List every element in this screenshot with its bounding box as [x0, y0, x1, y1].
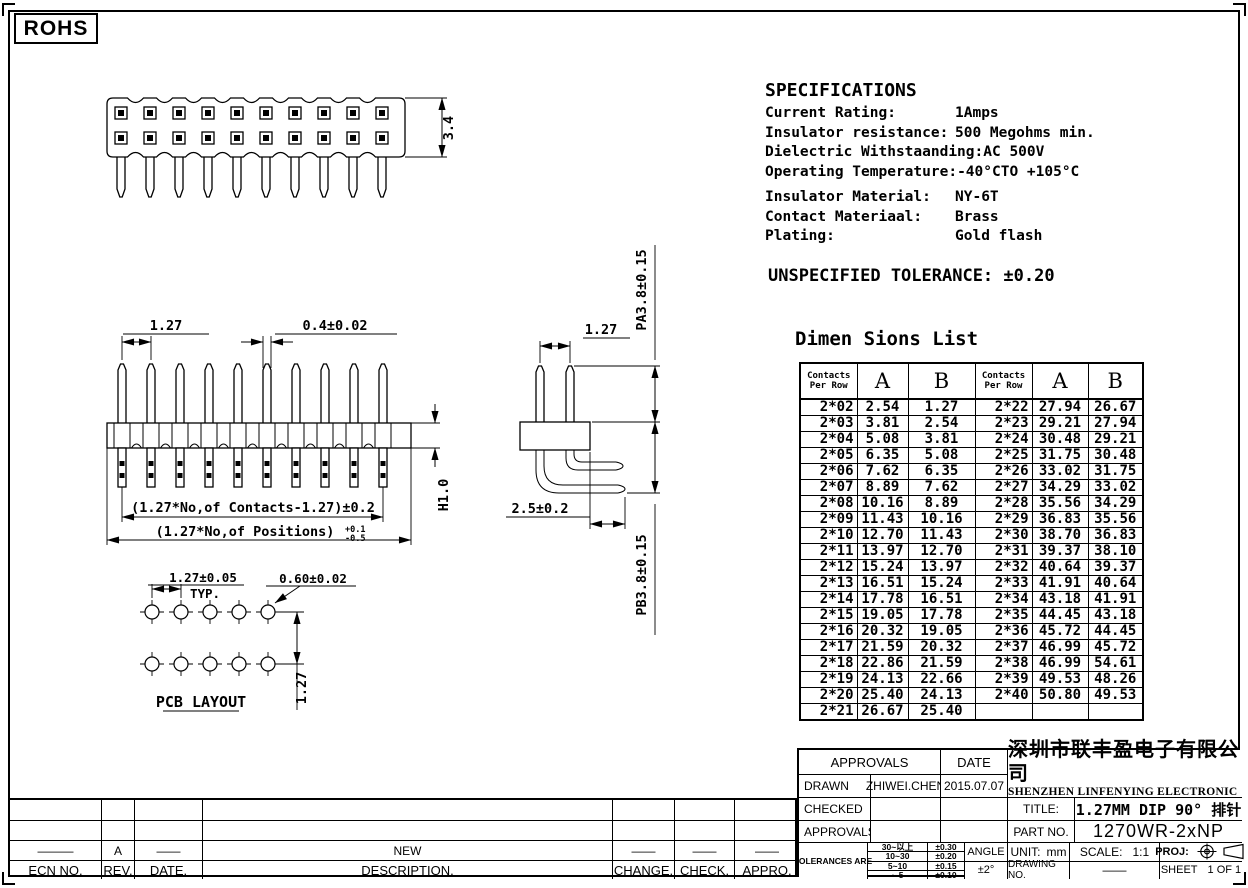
- front-pitch-dim: 1.27: [150, 318, 183, 334]
- contact-square-core: [234, 135, 240, 141]
- contact-square-core: [147, 110, 153, 116]
- dim-table-cell: 39.37: [1032, 544, 1088, 560]
- revision-block: ———A——NEW——————ECN NO.REV.DATE.DESCRIPTI…: [8, 798, 797, 877]
- pin: [233, 157, 241, 197]
- company-name-cn: 深圳市联丰盈电子有限公司: [1008, 738, 1242, 786]
- approvals-header: APPROVALS: [799, 750, 940, 774]
- spec-value: Gold flash: [955, 227, 1042, 247]
- dim-table-cell: 13.97: [857, 544, 908, 560]
- pin: [566, 366, 574, 422]
- dim-table-cell: 22.86: [857, 656, 908, 672]
- dim-table-cell: 2*25: [975, 448, 1032, 464]
- pin: [379, 364, 387, 423]
- dimensions-list-title: Dimen Sions List: [795, 328, 978, 350]
- scale-cell: SCALE: 1:1: [1069, 842, 1159, 861]
- dim-table-cell: 17.78: [857, 592, 908, 608]
- dim-table-cell: 31.75: [1088, 464, 1143, 480]
- dim-table-cell: 2*12: [800, 560, 857, 576]
- dim-table-cell: 2*30: [975, 528, 1032, 544]
- spec-row: Operating Temperature:-40°CTO +105°C: [765, 163, 1110, 183]
- third-angle-projection-icon: [1195, 843, 1247, 860]
- dim-table-cell: 54.61: [1088, 656, 1143, 672]
- dim-table-cell: 2*28: [975, 496, 1032, 512]
- dim-table-header-b: B: [908, 363, 975, 399]
- top-view-drawing: 3.4: [95, 82, 470, 210]
- revision-cell: ——: [612, 840, 674, 860]
- dim-table-cell: 2*10: [800, 528, 857, 544]
- sheet-cell: SHEET 1 OF 1: [1159, 861, 1242, 880]
- dim-table-cell: 2*22: [975, 399, 1032, 416]
- dim-table-cell: 13.97: [908, 560, 975, 576]
- leg: [350, 448, 358, 487]
- header-line: Per Row: [976, 381, 1032, 391]
- side-tail-dim: 2.5±0.2: [512, 501, 569, 517]
- contact-square-core: [350, 135, 356, 141]
- revision-header-cell: ECN NO.: [10, 860, 101, 879]
- spec-label: Plating:: [765, 227, 955, 247]
- revision-cell: [674, 800, 734, 820]
- dim-table-cell: 36.83: [1088, 528, 1143, 544]
- dim-table-cell: 2*08: [800, 496, 857, 512]
- drawing-no-value: ——: [1069, 861, 1159, 880]
- contact-square-core: [118, 135, 124, 141]
- date-header: DATE: [940, 750, 1007, 774]
- dim-table-cell: 38.70: [1032, 528, 1088, 544]
- leg: [118, 448, 126, 487]
- contact-square-core: [350, 110, 356, 116]
- spec-label: Current Rating:: [765, 104, 955, 124]
- tolerance-cell: ±0.30: [927, 842, 964, 851]
- revision-header-cell: DATE.: [134, 860, 202, 879]
- revision-header-cell: APPRO.: [734, 860, 799, 879]
- dim-table-cell: 2.54: [908, 416, 975, 432]
- leg: [205, 448, 213, 487]
- contact-square-core: [118, 110, 124, 116]
- pin: [378, 157, 386, 197]
- dim-table-cell: 2*04: [800, 432, 857, 448]
- front-positions-tol-lower: -0.5: [345, 534, 365, 544]
- angle-value: ±2°: [964, 861, 1007, 880]
- pin: [292, 364, 300, 423]
- contact-square-core: [263, 110, 269, 116]
- pcb-hole: [261, 657, 275, 671]
- dim-table-cell: 2*37: [975, 640, 1032, 656]
- dim-table-cell: 6.35: [908, 464, 975, 480]
- dim-table-cell: 2*24: [975, 432, 1032, 448]
- pcb-typ-label: TYP.: [190, 586, 220, 601]
- pin: [147, 364, 155, 423]
- dim-table-header-a: A: [1032, 363, 1088, 399]
- sheet-value: 1 OF 1: [1208, 864, 1242, 876]
- revision-cell: ———: [10, 840, 101, 860]
- dim-table-cell: 36.83: [1032, 512, 1088, 528]
- tolerance-cell: 5~10: [867, 861, 927, 870]
- pin: [205, 364, 213, 423]
- pin: [320, 157, 328, 197]
- dim-table-cell: 2*14: [800, 592, 857, 608]
- pin: [291, 157, 299, 197]
- dim-table-cell: 15.24: [857, 560, 908, 576]
- dim-table-cell: 2*38: [975, 656, 1032, 672]
- dim-table-cell: 7.62: [857, 464, 908, 480]
- leg: [321, 448, 329, 487]
- spec-row: Plating:Gold flash: [765, 227, 1110, 247]
- checked-date: [940, 797, 1007, 820]
- header-line: Per Row: [801, 381, 857, 391]
- approvals-date: [940, 820, 1007, 842]
- dim-table-cell: 2*23: [975, 416, 1032, 432]
- pcb-hole: [174, 657, 188, 671]
- contact-square-core: [176, 110, 182, 116]
- revision-cell: [202, 800, 612, 820]
- dim-table-cell: 2*27: [975, 480, 1032, 496]
- pcb-layout-drawing: 1.27±0.05 TYP. 0.60±0.02 1.27 PCB LAYOUT: [108, 572, 408, 724]
- pcb-hole: [145, 657, 159, 671]
- dim-table-cell: 21.59: [908, 656, 975, 672]
- leg: [234, 448, 242, 487]
- tolerance-grid: 30~以上±0.3010~30±0.205~10±0.15~ 5±0.10: [867, 842, 964, 879]
- dim-table-cell: 49.53: [1032, 672, 1088, 688]
- revision-cell: [734, 820, 799, 840]
- dim-table-cell: 2*06: [800, 464, 857, 480]
- dim-table-cell: 2*39: [975, 672, 1032, 688]
- dim-table-cell: 2*40: [975, 688, 1032, 704]
- tolerance-cell: ±0.20: [927, 851, 964, 860]
- revision-cell: [612, 800, 674, 820]
- front-view-drawing: 1.27 0.4±0.02 H1.0 (1.27*No,of Contacts-…: [95, 312, 470, 557]
- dim-table-cell: [1088, 704, 1143, 721]
- dim-table-cell: 5.08: [857, 432, 908, 448]
- dim-table-cell: 49.53: [1088, 688, 1143, 704]
- dim-table-cell: 46.99: [1032, 640, 1088, 656]
- dim-table-cell: 2*17: [800, 640, 857, 656]
- revision-header-cell: CHANGE.: [612, 860, 674, 879]
- pin: [146, 157, 154, 197]
- contact-square-core: [263, 135, 269, 141]
- dim-table-cell: 1.27: [908, 399, 975, 416]
- revision-cell: A: [101, 840, 134, 860]
- contact-square-core: [379, 110, 385, 116]
- dim-table-cell: 50.80: [1032, 688, 1088, 704]
- dim-table-cell: 12.70: [908, 544, 975, 560]
- dim-table-cell: 21.59: [857, 640, 908, 656]
- specifications-title: SPECIFICATIONS: [765, 80, 1110, 101]
- side-pb-dim: PB3.8±0.15: [634, 534, 650, 615]
- dim-table-cell: 2*29: [975, 512, 1032, 528]
- dim-table-cell: 25.40: [857, 688, 908, 704]
- leg: [263, 448, 271, 487]
- unit-cell: UNIT: mm: [1007, 842, 1069, 861]
- pin: [263, 364, 271, 423]
- revision-cell: [101, 820, 134, 840]
- pin: [321, 364, 329, 423]
- contact-square-core: [205, 110, 211, 116]
- spec-label: Insulator Material:: [765, 188, 955, 208]
- dim-table-cell: 39.37: [1088, 560, 1143, 576]
- revision-cell: [734, 800, 799, 820]
- revision-cell: ——: [734, 840, 799, 860]
- dim-table-cell: 2*15: [800, 608, 857, 624]
- tolerance-cell: 10~30: [867, 851, 927, 860]
- dim-table-cell: 2*03: [800, 416, 857, 432]
- leg: [379, 448, 387, 487]
- spec-label: Operating Temperature:: [765, 163, 957, 183]
- drawing-no-label: DRAWING NO.: [1007, 861, 1069, 880]
- leg: [147, 448, 155, 487]
- connector-body: [520, 422, 590, 450]
- dim-table-cell: 43.18: [1032, 592, 1088, 608]
- pin: [262, 157, 270, 197]
- dim-table-cell: 2*34: [975, 592, 1032, 608]
- dim-table-cell: 2*11: [800, 544, 857, 560]
- pin: [118, 364, 126, 423]
- spec-value: 500 Megohms min.: [955, 124, 1095, 144]
- dim-table-cell: 2*32: [975, 560, 1032, 576]
- dim-table-cell: 40.64: [1032, 560, 1088, 576]
- pin: [176, 364, 184, 423]
- spec-label: Insulator resistance:: [765, 124, 955, 144]
- dim-table-cell: 44.45: [1032, 608, 1088, 624]
- dim-table-cell: 2*05: [800, 448, 857, 464]
- specifications-block: SPECIFICATIONS Current Rating:1Amps Insu…: [765, 80, 1110, 247]
- dim-table-cell: 29.21: [1088, 432, 1143, 448]
- pcb-hole: [203, 657, 217, 671]
- pin: [204, 157, 212, 197]
- pin: [536, 366, 544, 422]
- dim-table-cell: 48.26: [1088, 672, 1143, 688]
- spec-label: Contact Materiaal:: [765, 208, 955, 228]
- revision-cell: [10, 820, 101, 840]
- title-label: TITLE:: [1007, 797, 1074, 820]
- revision-cell: [134, 800, 202, 820]
- revision-cell: [10, 800, 101, 820]
- scale-value: 1:1: [1133, 845, 1150, 859]
- dim-table-cell: 45.72: [1032, 624, 1088, 640]
- dim-table-cell: 2*26: [975, 464, 1032, 480]
- dim-table-cell: 2*16: [800, 624, 857, 640]
- approvals-label: APPROVALS: [799, 820, 870, 842]
- part-no-label: PART NO.: [1007, 820, 1074, 842]
- dim-table-cell: 41.91: [1088, 592, 1143, 608]
- contact-square-core: [321, 135, 327, 141]
- dim-table-cell: 7.62: [908, 480, 975, 496]
- contact-square-core: [379, 135, 385, 141]
- header-line: Contacts: [801, 371, 857, 381]
- dim-table-cell: 27.94: [1032, 399, 1088, 416]
- dim-table-cell: 26.67: [857, 704, 908, 721]
- spec-value: 1Amps: [955, 104, 999, 124]
- revision-header-cell: DESCRIPTION.: [202, 860, 612, 879]
- spec-row: Dielectric Withstaanding:AC 500V: [765, 143, 1110, 163]
- dim-table-cell: 34.29: [1088, 496, 1143, 512]
- spec-value: AC 500V: [983, 143, 1044, 163]
- tolerance-cell: ±0.10: [927, 870, 964, 879]
- dim-table-cell: 22.66: [908, 672, 975, 688]
- dim-table-cell: [1032, 704, 1088, 721]
- bent-leg: [574, 450, 616, 462]
- pin: [349, 157, 357, 197]
- dim-table-header-b: B: [1088, 363, 1143, 399]
- projection-cell: PROJ:: [1159, 842, 1242, 861]
- drawn-date: 2015.07.07: [940, 774, 1007, 797]
- dim-table-cell: 2*02: [800, 399, 857, 416]
- bent-leg: [536, 450, 618, 493]
- dim-table-cell: 8.89: [908, 496, 975, 512]
- pcb-layout-title: PCB LAYOUT: [156, 693, 246, 711]
- dim-table-cell: 16.51: [857, 576, 908, 592]
- part-no-value: 1270WR-2xNP: [1074, 820, 1242, 842]
- dim-table-cell: 2*21: [800, 704, 857, 721]
- dim-table-cell: 30.48: [1088, 448, 1143, 464]
- drawn-label: DRAWN: [799, 774, 870, 797]
- front-contacts-span-dim: (1.27*No,of Contacts-1.27)±0.2: [131, 500, 375, 516]
- dim-table-cell: 30.48: [1032, 432, 1088, 448]
- tolerance-cell: ±0.15: [927, 861, 964, 870]
- unspecified-tolerance-note: UNSPECIFIED TOLERANCE: ±0.20: [768, 266, 1055, 286]
- dim-table-cell: 33.02: [1088, 480, 1143, 496]
- drawing-sheet: ROHS SPECIFICATIONS Current Rating:1Amps…: [0, 0, 1248, 888]
- dim-table-cell: 10.16: [857, 496, 908, 512]
- dim-table-cell: 24.13: [908, 688, 975, 704]
- header-line: Contacts: [976, 371, 1032, 381]
- bent-leg: [544, 450, 618, 485]
- pcb-hole: [261, 605, 275, 619]
- dim-table-cell: 25.40: [908, 704, 975, 721]
- contact-square-core: [292, 135, 298, 141]
- dim-table-cell: 45.72: [1088, 640, 1143, 656]
- dim-table-cell: 8.89: [857, 480, 908, 496]
- dim-table-cell: 10.16: [908, 512, 975, 528]
- revision-header-cell: CHECK.: [674, 860, 734, 879]
- dim-table-cell: 17.78: [908, 608, 975, 624]
- dim-table-header-contacts: ContactsPer Row: [800, 363, 857, 399]
- approvals-name: [870, 820, 940, 842]
- spec-row: Contact Materiaal:Brass: [765, 208, 1110, 228]
- dim-table-cell: 3.81: [857, 416, 908, 432]
- revision-cell: ——: [674, 840, 734, 860]
- dim-table-cell: 6.35: [857, 448, 908, 464]
- spec-row: Current Rating:1Amps: [765, 104, 1110, 124]
- pcb-row-pitch-dim: 1.27: [294, 672, 310, 705]
- rohs-label: ROHS: [24, 17, 89, 41]
- pcb-hole: [203, 605, 217, 619]
- tolerance-cell: 30~以上: [867, 842, 927, 851]
- dim-table-cell: 26.67: [1088, 399, 1143, 416]
- dim-table-cell: 16.51: [908, 592, 975, 608]
- dim-table-cell: 2*07: [800, 480, 857, 496]
- dim-table-cell: 27.94: [1088, 416, 1143, 432]
- contact-square-core: [205, 135, 211, 141]
- contact-square-core: [321, 110, 327, 116]
- dim-table-cell: 34.29: [1032, 480, 1088, 496]
- pcb-pitch-dim: 1.27±0.05: [169, 570, 237, 585]
- pcb-hole: [145, 605, 159, 619]
- title-block: APPROVALS DATE DRAWN ZHIWEI.CHEN 2015.07…: [797, 748, 1240, 877]
- revision-cell: [674, 820, 734, 840]
- contact-square-core: [292, 110, 298, 116]
- spec-value: -40°CTO +105°C: [957, 163, 1079, 183]
- projection-label: PROJ:: [1155, 846, 1189, 858]
- dim-table-cell: 2.54: [857, 399, 908, 416]
- dim-table-cell: 2*35: [975, 608, 1032, 624]
- dim-table-cell: 12.70: [857, 528, 908, 544]
- dim-table-cell: 38.10: [1088, 544, 1143, 560]
- dim-table-cell: 20.32: [908, 640, 975, 656]
- dim-table-cell: 2*31: [975, 544, 1032, 560]
- sheet-label: SHEET: [1161, 864, 1198, 876]
- revision-header-cell: REV.: [101, 860, 134, 879]
- dim-table-cell: 40.64: [1088, 576, 1143, 592]
- pcb-hole-dim: 0.60±0.02: [279, 571, 347, 586]
- dim-table-cell: 2*33: [975, 576, 1032, 592]
- spec-label: Dielectric Withstaanding:: [765, 143, 983, 163]
- dimensions-table: ContactsPer RowABContactsPer RowAB2*022.…: [799, 362, 1144, 721]
- contact-square-core: [234, 110, 240, 116]
- dim-table-cell: 35.56: [1088, 512, 1143, 528]
- unit-value: mm: [1047, 845, 1067, 859]
- dim-table-cell: 11.43: [857, 512, 908, 528]
- tolerance-cell: ~ 5: [867, 870, 927, 879]
- pin: [175, 157, 183, 197]
- checked-label: CHECKED: [799, 797, 870, 820]
- dim-table-cell: 2*18: [800, 656, 857, 672]
- unit-label: UNIT:: [1011, 845, 1041, 859]
- angle-header: ANGLE: [964, 842, 1007, 861]
- dim-table-cell: [975, 704, 1032, 721]
- dim-table-cell: 31.75: [1032, 448, 1088, 464]
- pcb-hole: [232, 657, 246, 671]
- dim-table-header-contacts: ContactsPer Row: [975, 363, 1032, 399]
- dim-table-cell: 46.99: [1032, 656, 1088, 672]
- front-body-height-dim: H1.0: [436, 479, 452, 512]
- leg: [292, 448, 300, 487]
- dim-table-cell: 19.05: [908, 624, 975, 640]
- front-pin-width-dim: 0.4±0.02: [302, 318, 367, 334]
- dim-table-cell: 2*20: [800, 688, 857, 704]
- rohs-badge: ROHS: [14, 13, 98, 44]
- dim-table-header-a: A: [857, 363, 908, 399]
- spec-value: Brass: [955, 208, 999, 228]
- dim-table-cell: 24.13: [857, 672, 908, 688]
- revision-cell: [101, 800, 134, 820]
- dim-table-cell: 5.08: [908, 448, 975, 464]
- revision-cell: [134, 820, 202, 840]
- company-block: 深圳市联丰盈电子有限公司 SHENZHEN LINFENYING ELECTRO…: [1007, 750, 1242, 797]
- scale-label: SCALE:: [1080, 845, 1123, 859]
- dim-table-cell: 44.45: [1088, 624, 1143, 640]
- dim-table-cell: 41.91: [1032, 576, 1088, 592]
- side-pa-dim: PA3.8±0.15: [634, 249, 650, 330]
- tolerances-label: TOLERANCES ARE: [799, 842, 867, 879]
- drawn-name: ZHIWEI.CHEN: [870, 774, 940, 797]
- dim-table-cell: 2*36: [975, 624, 1032, 640]
- dim-table-cell: 11.43: [908, 528, 975, 544]
- dim-table-cell: 2*19: [800, 672, 857, 688]
- pcb-hole: [174, 605, 188, 619]
- side-view-drawing: 1.27 PA3.8±0.15 PB3.8±0.15 2.5±0.2: [498, 242, 678, 642]
- front-positions-span-dim: (1.27*No,of Positions): [156, 524, 335, 540]
- dim-table-cell: 2*13: [800, 576, 857, 592]
- pin: [117, 157, 125, 197]
- top-view-height-dim: 3.4: [441, 116, 457, 140]
- dim-table-cell: 2*09: [800, 512, 857, 528]
- dim-table-cell: 43.18: [1088, 608, 1143, 624]
- spec-value: NY-6T: [955, 188, 999, 208]
- dim-table-cell: 20.32: [857, 624, 908, 640]
- revision-cell: ——: [134, 840, 202, 860]
- leg: [176, 448, 184, 487]
- dim-table-cell: 15.24: [908, 576, 975, 592]
